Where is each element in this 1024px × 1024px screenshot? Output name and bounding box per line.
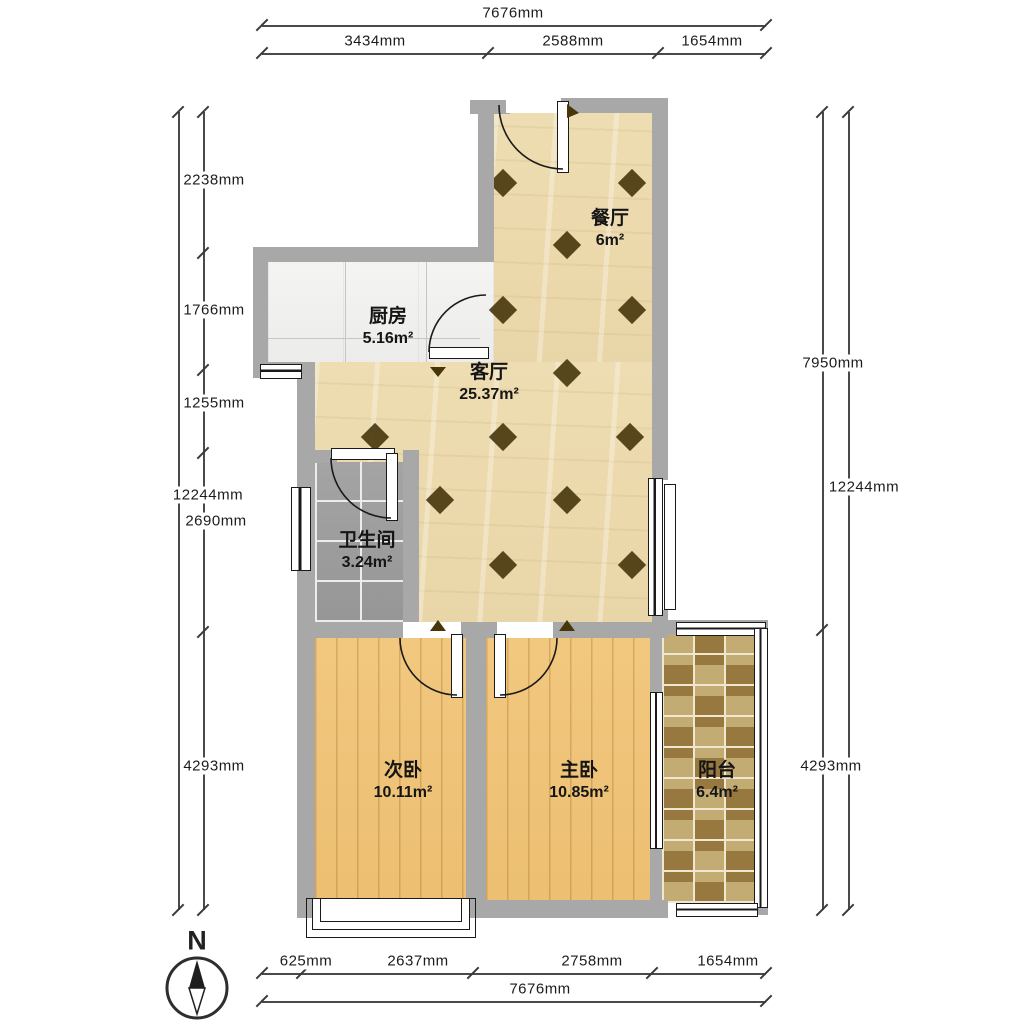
balcony-window-right <box>754 628 768 908</box>
compass-icon <box>167 958 227 1018</box>
living-room-window <box>648 478 663 616</box>
kitchen-divider-line <box>426 262 427 362</box>
living-room-window-frame <box>664 484 676 610</box>
wall-segment <box>297 622 403 638</box>
dim-line-right-segments <box>822 112 824 910</box>
second-bedroom-door-leaf <box>451 634 463 698</box>
dim-label: 1766mm <box>180 302 247 319</box>
room-name: 阳台 <box>696 760 738 783</box>
dim-label: 2758mm <box>558 953 625 970</box>
wall-segment <box>466 638 486 900</box>
dim-label: 7676mm <box>506 981 573 998</box>
wall-segment <box>253 247 268 368</box>
dim-line-left-segments <box>203 112 205 910</box>
dim-label: 625mm <box>277 953 336 970</box>
dim-label: 7950mm <box>799 355 866 372</box>
kitchen-window <box>260 364 302 379</box>
dim-label: 1255mm <box>180 395 247 412</box>
dim-label: 1654mm <box>678 33 745 50</box>
balcony-window-bottom <box>676 903 758 917</box>
entry-door-opening <box>506 98 558 113</box>
wall-segment <box>478 100 494 250</box>
wall-segment <box>650 638 662 693</box>
dim-label: 2238mm <box>180 172 247 189</box>
dim-label: 2690mm <box>182 513 249 530</box>
dim-line-bottom-overall <box>262 1001 766 1003</box>
wall-segment <box>461 622 497 638</box>
dim-label: 2637mm <box>384 953 451 970</box>
entry-door-leaf <box>557 101 569 173</box>
wall-segment <box>403 450 419 638</box>
room-name: 客厅 <box>459 362 519 385</box>
room-name: 卫生间 <box>338 530 395 553</box>
balcony-window-top <box>676 622 766 636</box>
room-area: 3.24m² <box>338 553 395 572</box>
dim-label: 1654mm <box>694 953 761 970</box>
room-name: 主卧 <box>549 760 609 783</box>
room-label-master-bedroom: 主卧 10.85m² <box>549 760 609 802</box>
dim-line-right-overall <box>848 112 850 910</box>
room-name: 餐厅 <box>591 208 629 231</box>
dim-label: 4293mm <box>797 758 864 775</box>
kitchen-door-leaf <box>429 347 489 359</box>
wall-segment <box>297 362 315 918</box>
dim-label: 12244mm <box>826 479 902 496</box>
room-area: 10.11m² <box>374 783 433 802</box>
bathroom-door-leaf <box>386 453 398 521</box>
room-area: 10.85m² <box>549 783 609 802</box>
wall-segment <box>458 900 668 918</box>
bathroom-window <box>291 487 311 571</box>
dim-label: 3434mm <box>341 33 408 50</box>
wall-segment <box>650 846 662 902</box>
room-name: 厨房 <box>363 306 414 329</box>
room-area: 25.37m² <box>459 385 519 404</box>
floorplan-canvas: N 餐厅 6m² 厨房 5.16m² 客厅 25.37m² 卫生间 3.24m²… <box>0 0 1024 1024</box>
room-area: 6m² <box>591 231 629 250</box>
dim-label: 7676mm <box>479 5 546 22</box>
compass-north-label: N <box>187 926 207 957</box>
room-label-second-bedroom: 次卧 10.11m² <box>374 760 433 802</box>
dim-label: 12244mm <box>170 487 246 504</box>
dim-line-left-overall <box>178 112 180 910</box>
room-label-balcony: 阳台 6.4m² <box>696 760 738 802</box>
dim-line-top-overall <box>262 25 766 27</box>
room-area: 5.16m² <box>363 329 414 348</box>
bay-window-inner-frame <box>320 898 462 922</box>
dim-line-top-segments <box>262 53 766 55</box>
dim-label: 2588mm <box>539 33 606 50</box>
dim-line-bottom-segments <box>262 973 766 975</box>
wall-segment <box>652 98 668 480</box>
room-label-living: 客厅 25.37m² <box>459 362 519 404</box>
wall-segment <box>553 622 668 638</box>
room-label-bathroom: 卫生间 3.24m² <box>338 530 395 572</box>
kitchen-divider-line <box>345 262 346 362</box>
room-name: 次卧 <box>374 760 433 783</box>
room-area: 6.4m² <box>696 783 738 802</box>
wall-segment <box>253 247 494 262</box>
room-label-kitchen: 厨房 5.16m² <box>363 306 414 348</box>
master-bedroom-door-leaf <box>494 634 506 698</box>
dim-label: 4293mm <box>180 758 247 775</box>
room-label-dining: 餐厅 6m² <box>591 208 629 250</box>
master-bedroom-balcony-window <box>650 692 663 849</box>
